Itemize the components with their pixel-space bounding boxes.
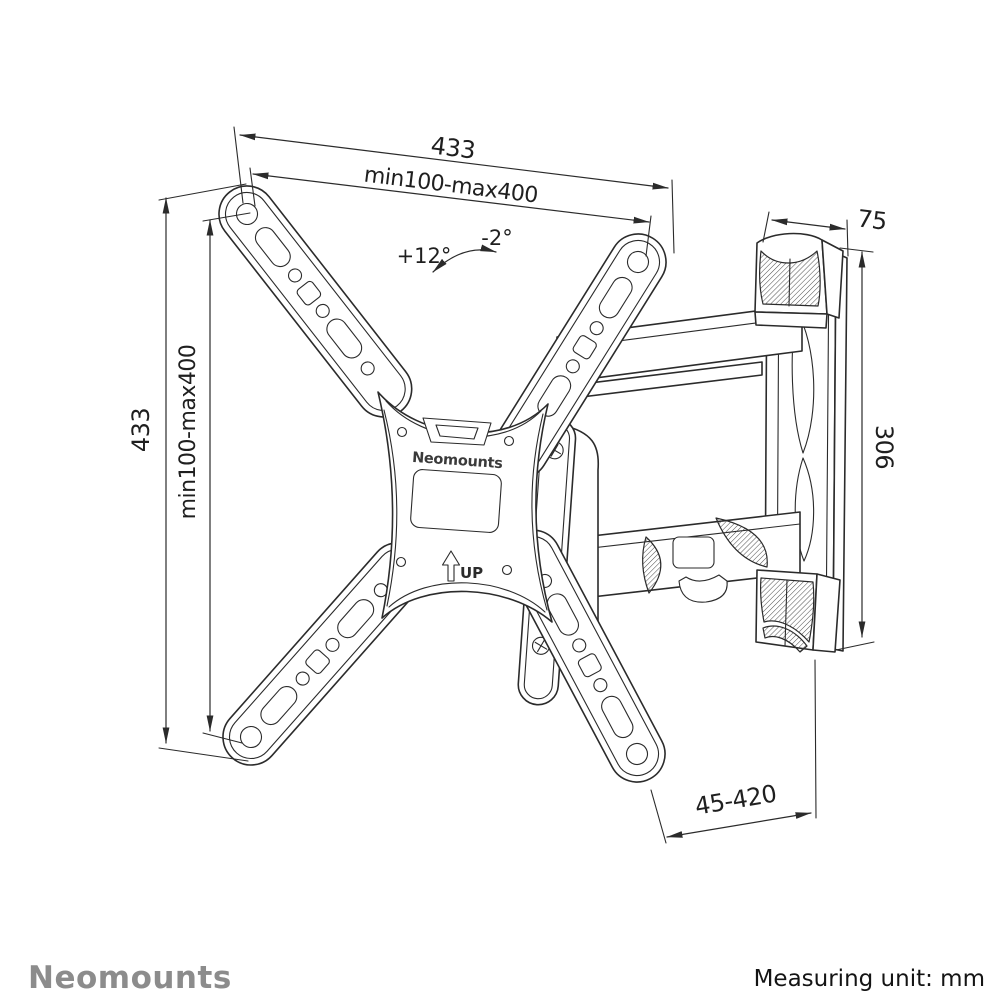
dim-side-height-label: 433	[127, 408, 155, 452]
dim-top-vesa-label: min100-max400	[362, 162, 539, 208]
tilt-up-label: +12°	[397, 244, 452, 268]
wall-plate-bottom-pad	[756, 570, 840, 652]
dim-side-vesa-label: min100-max400	[176, 345, 201, 520]
measuring-unit-note: Measuring unit: mm	[754, 966, 985, 992]
dim-extension-label: 45-420	[693, 780, 779, 821]
center-plate: Neomounts UP	[378, 392, 552, 622]
tilt-down-label: -2°	[481, 226, 512, 250]
dim-depth-label: 75	[856, 204, 889, 235]
dimension-top-vesa: min100-max400	[250, 162, 651, 256]
tilt-angle-annotation: +12° -2°	[397, 226, 513, 272]
wall-mount-technical-drawing: Neomounts UP 433 min100-max400 +12° -2° …	[0, 0, 1004, 1004]
hinge-cover	[673, 537, 714, 568]
footer-brand-logo: Neomounts	[28, 960, 232, 996]
drawing-canvas: Neomounts UP 433 min100-max400 +12° -2° …	[0, 0, 1004, 1004]
dimension-side-vesa: min100-max400	[176, 213, 250, 743]
dimension-extension: 45-420	[651, 660, 816, 843]
wall-plate-top-pad	[755, 234, 843, 328]
plate-window	[410, 469, 502, 533]
dim-top-width-label: 433	[429, 131, 476, 164]
cable-hook	[423, 418, 491, 445]
dim-plate-height-label: 306	[870, 425, 898, 469]
up-label: UP	[460, 564, 483, 582]
vesa-arm-top-left	[208, 175, 423, 429]
